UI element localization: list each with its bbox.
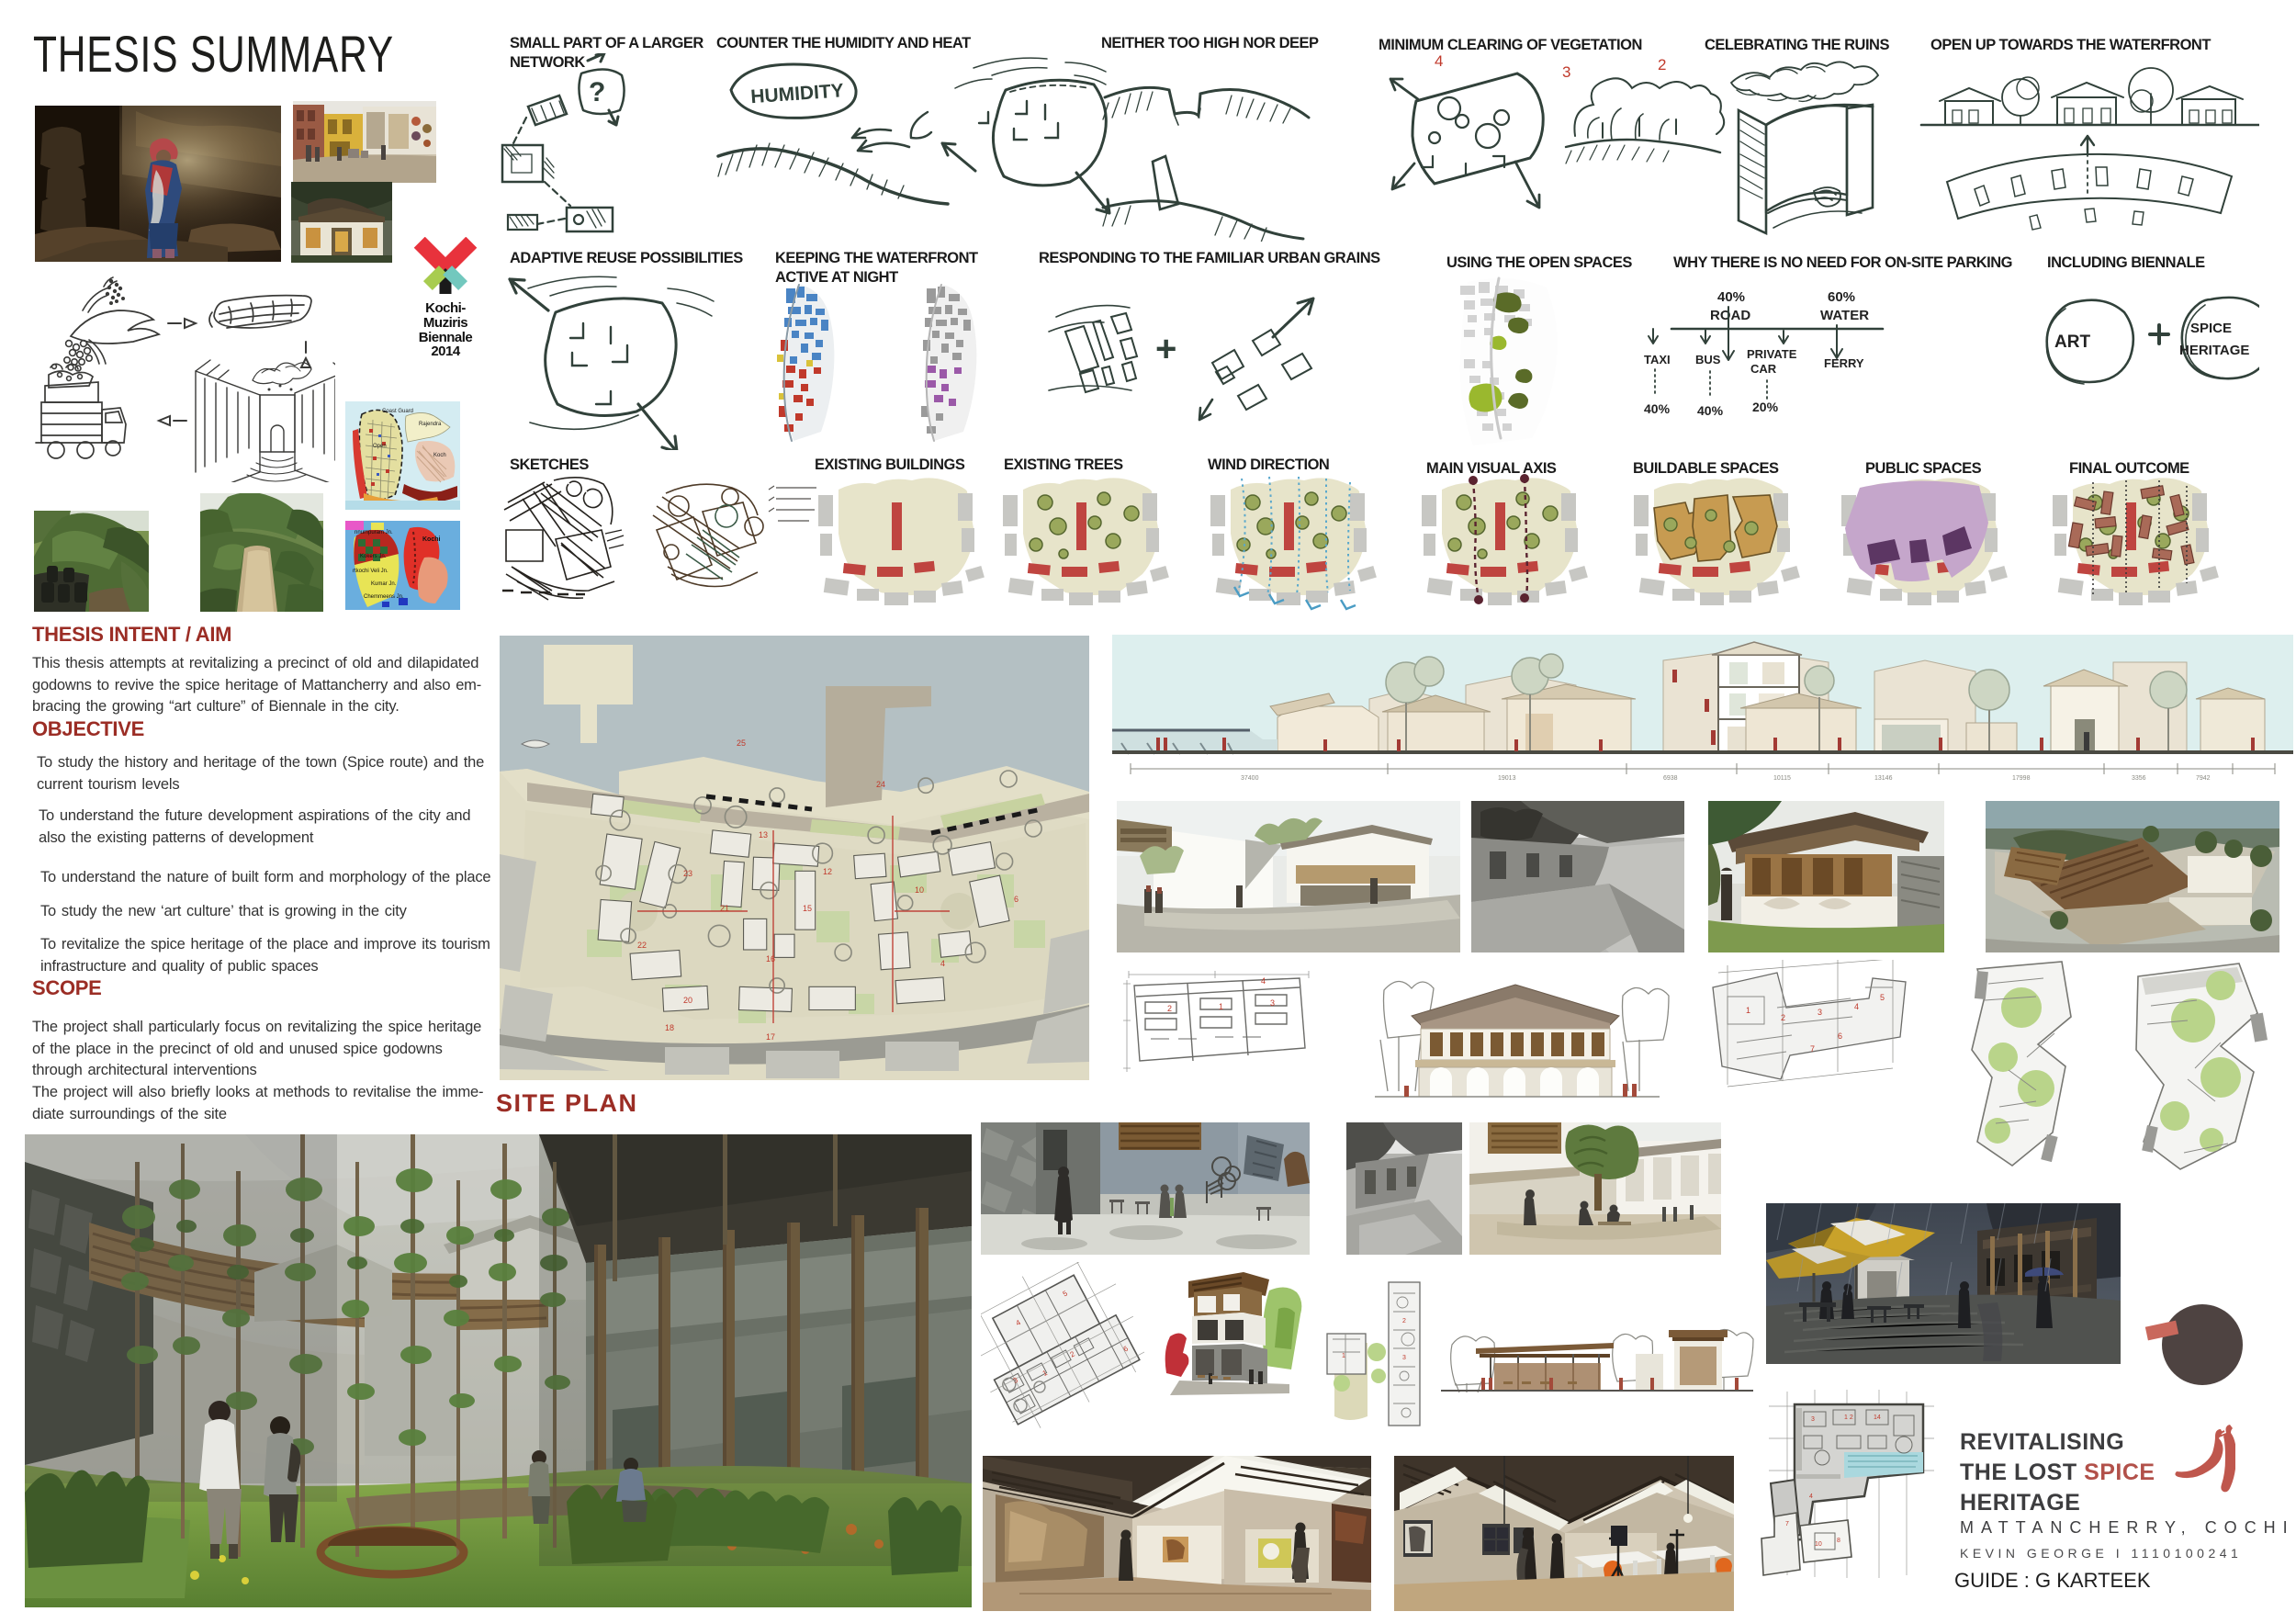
svg-text:CAR: CAR bbox=[1750, 362, 1777, 376]
svg-text:12: 12 bbox=[823, 867, 832, 876]
svg-text:3: 3 bbox=[1811, 1416, 1815, 1423]
svg-text:BUS: BUS bbox=[1695, 353, 1721, 366]
svg-text:16: 16 bbox=[766, 954, 775, 964]
svg-text:Coast Guard: Coast Guard bbox=[382, 409, 413, 414]
svg-text:5: 5 bbox=[1880, 993, 1885, 1002]
svg-text:4: 4 bbox=[1261, 976, 1266, 986]
svg-text:20: 20 bbox=[683, 996, 692, 1005]
svg-text:4: 4 bbox=[1435, 53, 1443, 70]
svg-text:23: 23 bbox=[683, 869, 692, 878]
svg-text:Chemmeens Jn.: Chemmeens Jn. bbox=[364, 594, 404, 600]
svg-text:17998: 17998 bbox=[2012, 775, 2031, 782]
svg-text:2: 2 bbox=[1781, 1013, 1785, 1022]
svg-text:2: 2 bbox=[1402, 1318, 1406, 1324]
svg-text:37400: 37400 bbox=[1241, 775, 1259, 782]
svg-text:17: 17 bbox=[766, 1032, 775, 1042]
svg-text:13146: 13146 bbox=[1874, 775, 1893, 782]
svg-text:13: 13 bbox=[759, 830, 768, 840]
svg-text:60%: 60% bbox=[1828, 289, 1855, 305]
svg-text:20%: 20% bbox=[1752, 400, 1779, 414]
svg-text:2: 2 bbox=[1658, 56, 1666, 73]
svg-text:HERITAGE: HERITAGE bbox=[2179, 343, 2249, 358]
svg-text:40%: 40% bbox=[1644, 401, 1671, 416]
svg-text:4: 4 bbox=[940, 959, 945, 968]
svg-text:nnumpuram Jn.: nnumpuram Jn. bbox=[355, 530, 393, 535]
svg-text:3: 3 bbox=[1562, 63, 1570, 81]
svg-text:22: 22 bbox=[637, 941, 647, 950]
svg-text:Koch: Koch bbox=[433, 453, 446, 458]
svg-text:19013: 19013 bbox=[1498, 775, 1516, 782]
svg-text:Kumar Jn.: Kumar Jn. bbox=[371, 581, 397, 587]
svg-text:3: 3 bbox=[1818, 1008, 1822, 1017]
svg-text:FERRY: FERRY bbox=[1824, 356, 1864, 370]
svg-text:8: 8 bbox=[1837, 1538, 1840, 1544]
svg-text:1 2: 1 2 bbox=[1844, 1414, 1853, 1421]
svg-text:6: 6 bbox=[1014, 895, 1019, 904]
svg-text:40%: 40% bbox=[1697, 403, 1724, 418]
svg-text:10: 10 bbox=[915, 885, 924, 895]
svg-text:1: 1 bbox=[1746, 1006, 1750, 1015]
svg-text:TAXI: TAXI bbox=[1644, 353, 1671, 366]
svg-text:ROAD: ROAD bbox=[1710, 308, 1750, 323]
svg-text:3: 3 bbox=[1402, 1355, 1406, 1361]
svg-text:40%: 40% bbox=[1717, 289, 1745, 305]
svg-text:Muziris: Muziris bbox=[423, 315, 467, 331]
svg-text:18: 18 bbox=[665, 1023, 674, 1032]
svg-text:rtkochi Veli Jn.: rtkochi Veli Jn. bbox=[353, 569, 388, 574]
svg-text:10115: 10115 bbox=[1773, 775, 1791, 782]
svg-text:2: 2 bbox=[1167, 1004, 1172, 1013]
svg-text:7: 7 bbox=[1785, 1521, 1789, 1527]
svg-text:2014: 2014 bbox=[431, 344, 461, 357]
svg-text:21: 21 bbox=[720, 904, 729, 913]
svg-text:1: 1 bbox=[1219, 1002, 1223, 1011]
svg-text:Kokers Jn.: Kokers Jn. bbox=[360, 554, 387, 559]
svg-text:24: 24 bbox=[876, 780, 885, 789]
svg-text:+: + bbox=[1155, 329, 1176, 369]
svg-text:Kochi-: Kochi- bbox=[425, 300, 466, 316]
svg-text:WATER: WATER bbox=[1820, 308, 1869, 323]
svg-text:ART: ART bbox=[2054, 332, 2090, 352]
svg-text:15: 15 bbox=[803, 904, 812, 913]
svg-text:1: 1 bbox=[1342, 1353, 1345, 1359]
svg-text:6938: 6938 bbox=[1663, 775, 1678, 782]
svg-text:7942: 7942 bbox=[2196, 775, 2211, 782]
svg-text:3356: 3356 bbox=[2132, 775, 2146, 782]
svg-text:Kochi: Kochi bbox=[422, 536, 441, 543]
svg-text:Open: Open bbox=[373, 444, 387, 449]
svg-text:14: 14 bbox=[1874, 1414, 1881, 1421]
svg-text:SPICE: SPICE bbox=[2190, 321, 2232, 336]
svg-text:Rajendra: Rajendra bbox=[419, 422, 442, 427]
svg-text:3: 3 bbox=[1270, 998, 1275, 1008]
svg-text:4: 4 bbox=[1854, 1002, 1859, 1011]
svg-text:25: 25 bbox=[737, 738, 746, 748]
svg-text:10: 10 bbox=[1815, 1541, 1822, 1548]
svg-text:HUMIDITY: HUMIDITY bbox=[750, 80, 845, 107]
svg-text:?: ? bbox=[589, 77, 605, 107]
svg-text:PRIVATE: PRIVATE bbox=[1747, 347, 1797, 361]
svg-text:6: 6 bbox=[1838, 1031, 1842, 1041]
svg-text:4: 4 bbox=[1809, 1493, 1813, 1500]
svg-text:7: 7 bbox=[1810, 1044, 1815, 1054]
